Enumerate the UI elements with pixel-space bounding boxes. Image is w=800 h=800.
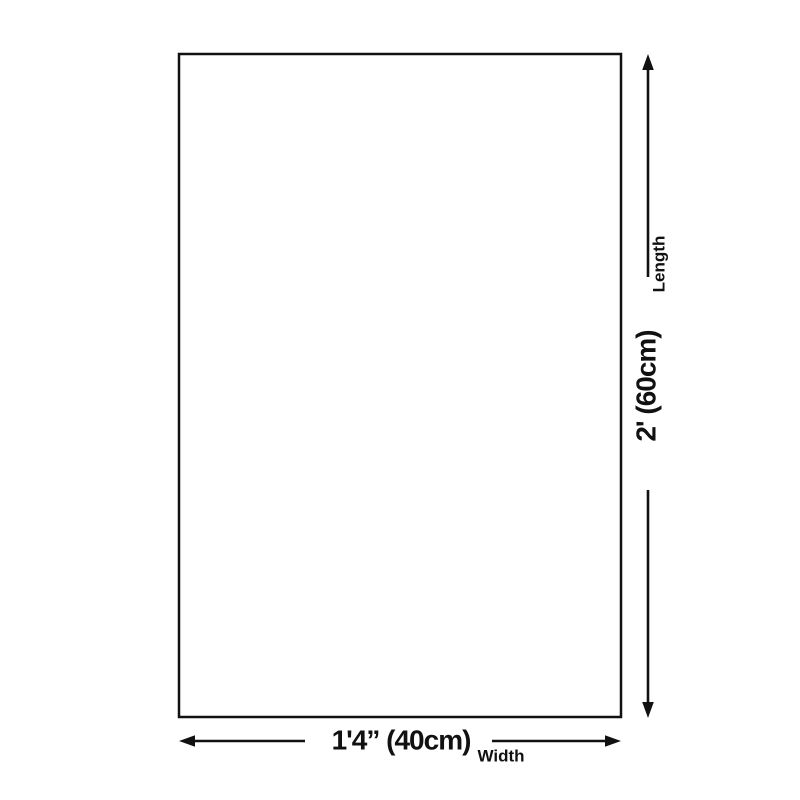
width-value: 1'4” (40cm)	[332, 726, 471, 757]
length-label: Length	[651, 236, 670, 293]
product-outline	[179, 54, 621, 717]
arrowhead-up-icon	[642, 54, 654, 70]
size-diagram: 1'4” (40cm) Width 2' (60cm) Length	[0, 0, 800, 800]
arrowhead-right-icon	[605, 735, 621, 747]
arrowhead-down-icon	[642, 702, 654, 718]
diagram-canvas	[0, 0, 800, 800]
length-value: 2' (60cm)	[632, 330, 663, 441]
arrowhead-left-icon	[179, 735, 195, 747]
width-label: Width	[477, 748, 524, 767]
